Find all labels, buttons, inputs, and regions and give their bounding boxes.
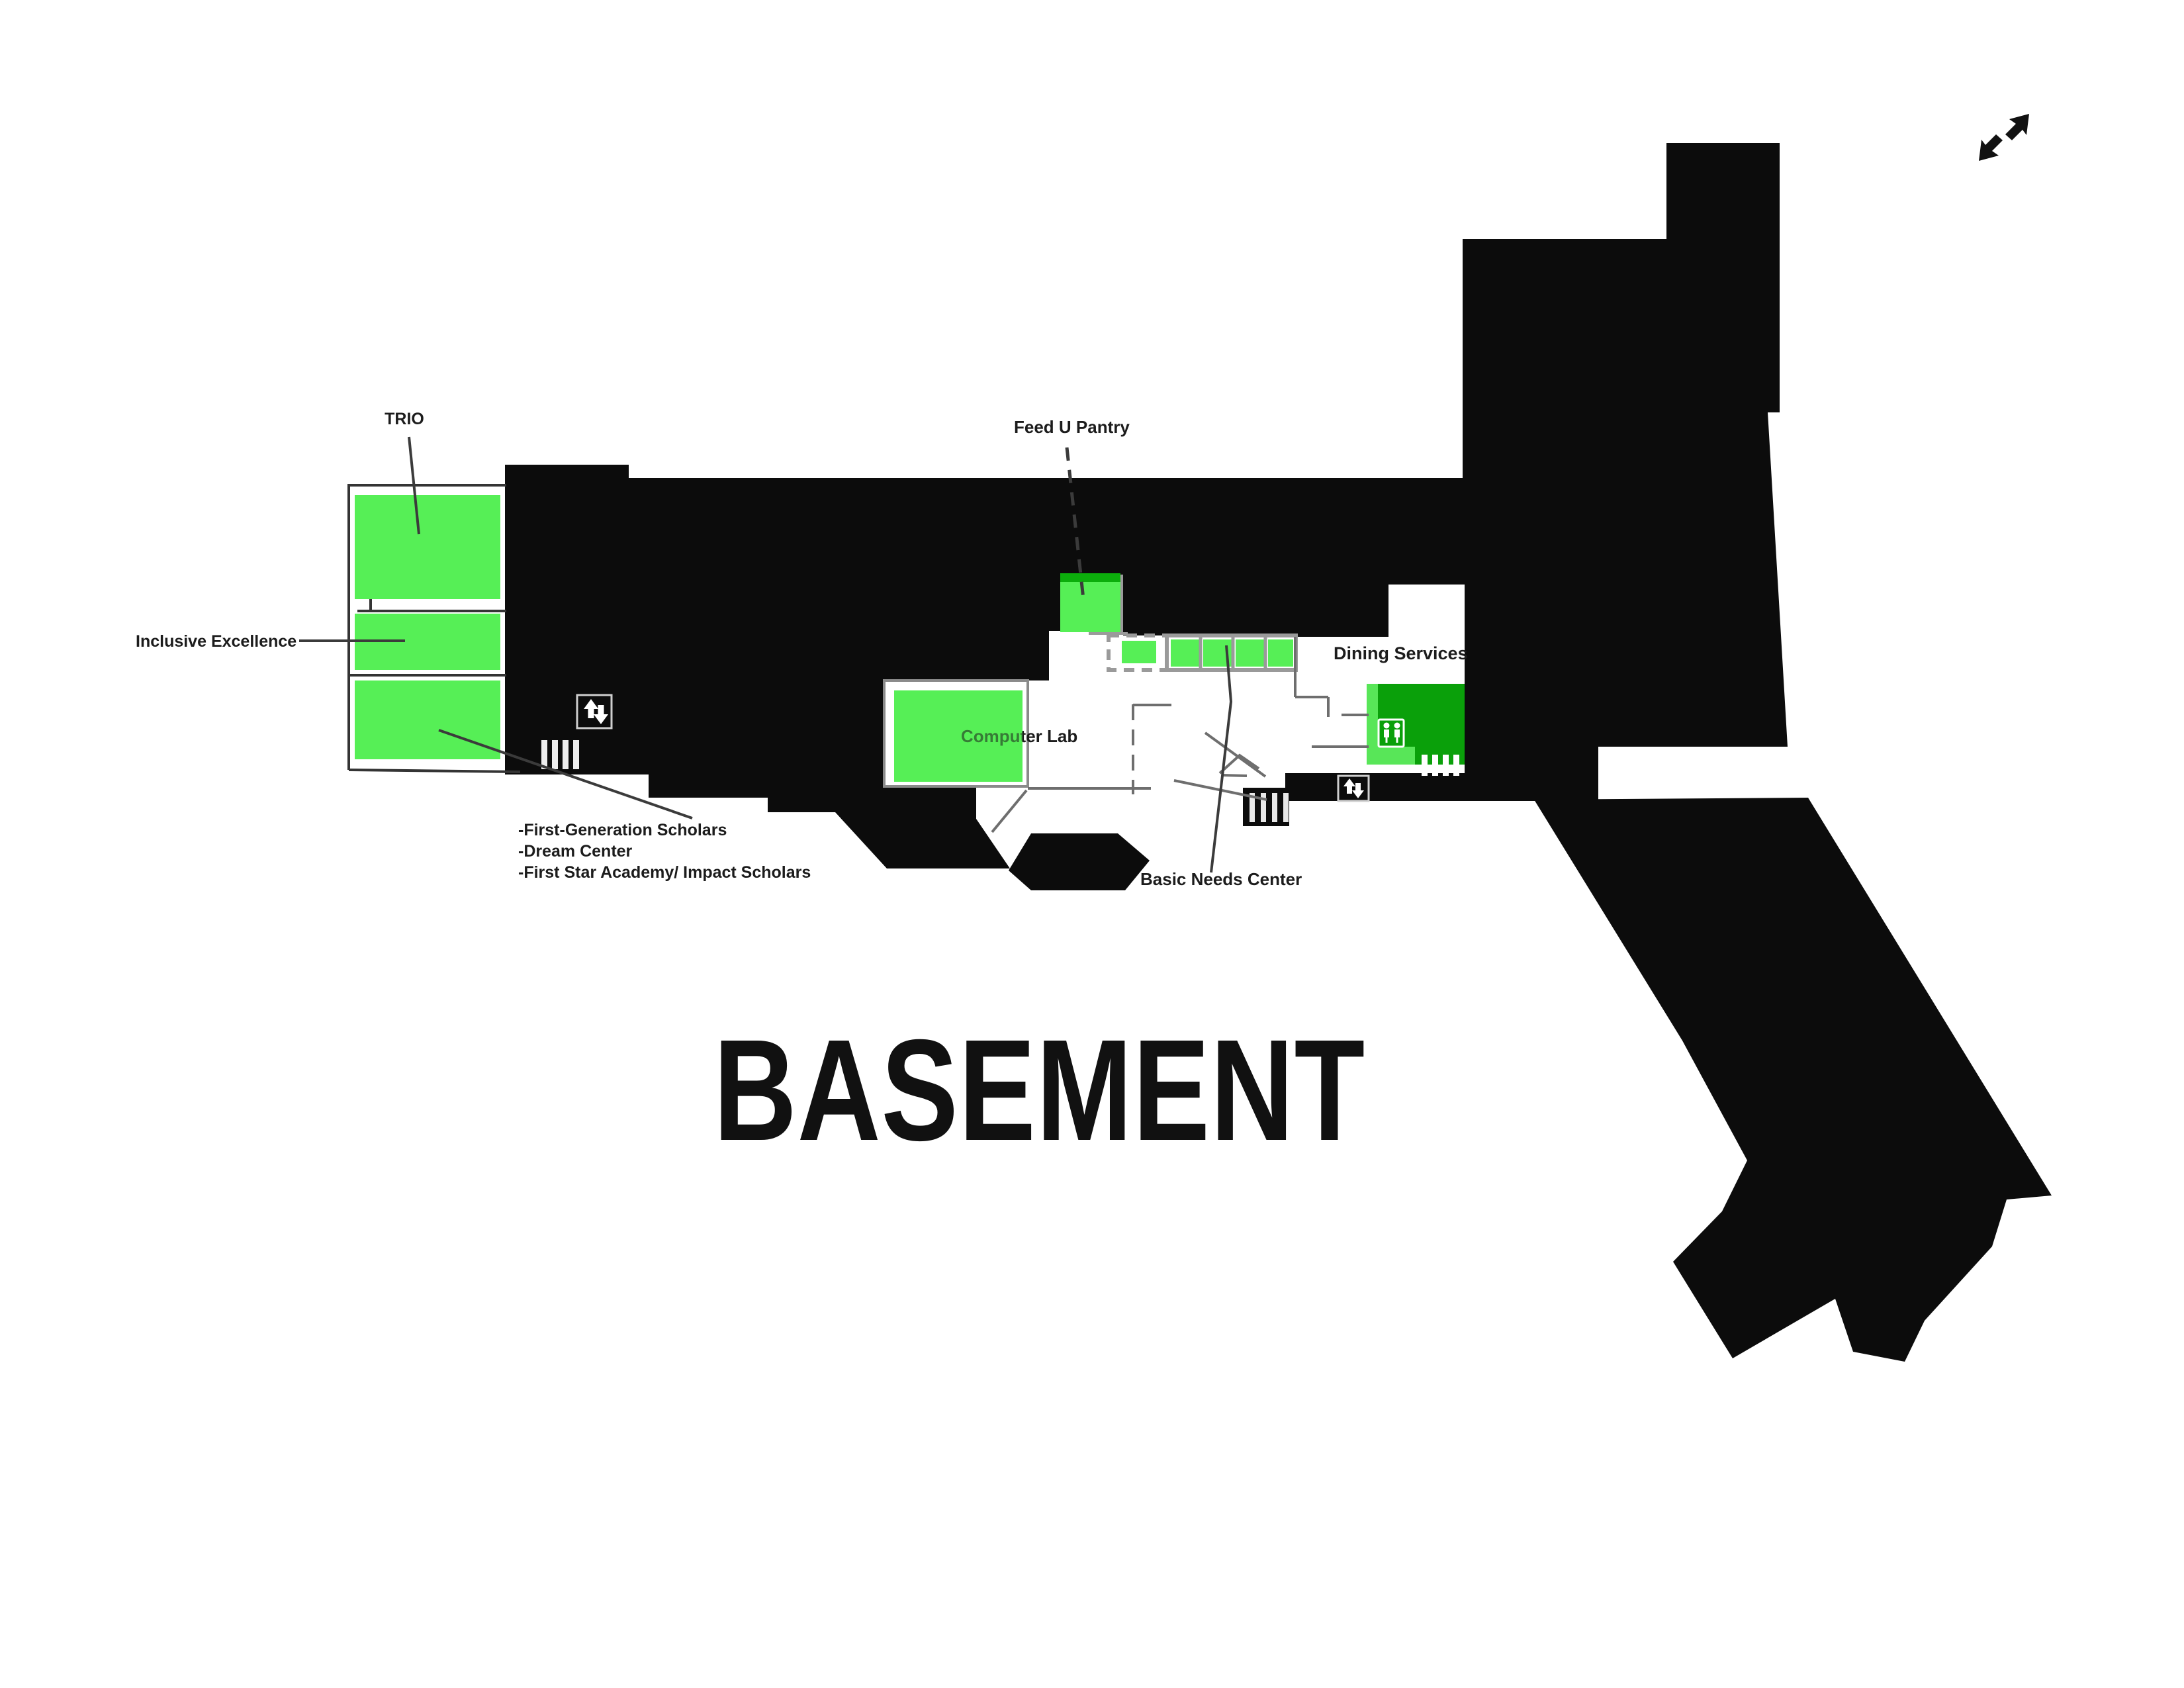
basic-needs-cell-0 — [1122, 641, 1156, 663]
building-south-band — [1285, 776, 1598, 801]
elevator-icon-south — [1338, 776, 1369, 801]
floor-title-group: BASEMENT — [713, 1009, 1365, 1170]
room-trio-upper — [355, 495, 500, 599]
room-feed-u-pantry-top-strip — [1060, 573, 1120, 582]
computer-lab-green-overlay — [894, 690, 1023, 782]
scholars-annotation-line-3: -First Star Academy/ Impact Scholars — [518, 863, 811, 882]
room-scholars-suite — [355, 680, 500, 759]
basic-needs-rooms-row — [1109, 635, 1296, 670]
basic-needs-cell-4 — [1268, 639, 1293, 667]
basic-needs-cell-3 — [1236, 639, 1264, 667]
elevator-icon-west — [577, 695, 612, 728]
dining-services-label: Dining Services — [1334, 643, 1468, 663]
building-left-step-1 — [649, 761, 768, 798]
scholars-annotation-line-1: -First-Generation Scholars — [518, 821, 727, 839]
basic-needs-cell-1 — [1171, 639, 1199, 667]
room-feed-u-pantry — [1060, 581, 1120, 632]
feed-u-pantry-label: Feed U Pantry — [1014, 417, 1130, 437]
dining-bottom-strip — [1367, 747, 1415, 765]
scholars-annotation-line-2: -Dream Center — [518, 842, 633, 861]
stairs-icon-center — [1243, 788, 1289, 826]
expand-arrow-ne — [2005, 114, 2029, 140]
building-diagonal-wing — [1534, 798, 2052, 1362]
stairs-icon-west — [535, 735, 585, 774]
floor-title: BASEMENT — [713, 1009, 1365, 1170]
dining-services-room-group — [1367, 684, 1465, 776]
basement-floor-plan: Computer Lab — [0, 0, 2184, 1688]
inclusive-excellence-label: Inclusive Excellence — [136, 632, 296, 651]
basic-needs-center-label: Basic Needs Center — [1140, 869, 1302, 889]
expand-arrows-icon[interactable] — [1979, 114, 2029, 161]
building-block-tower — [1463, 143, 1788, 747]
expand-arrow-sw — [1979, 134, 2003, 161]
trio-label: TRIO — [385, 410, 424, 428]
building-left-step-2 — [768, 761, 835, 812]
trio-outline-bottom — [349, 770, 520, 772]
floor-plan-canvas: Computer Lab — [0, 0, 2184, 1688]
